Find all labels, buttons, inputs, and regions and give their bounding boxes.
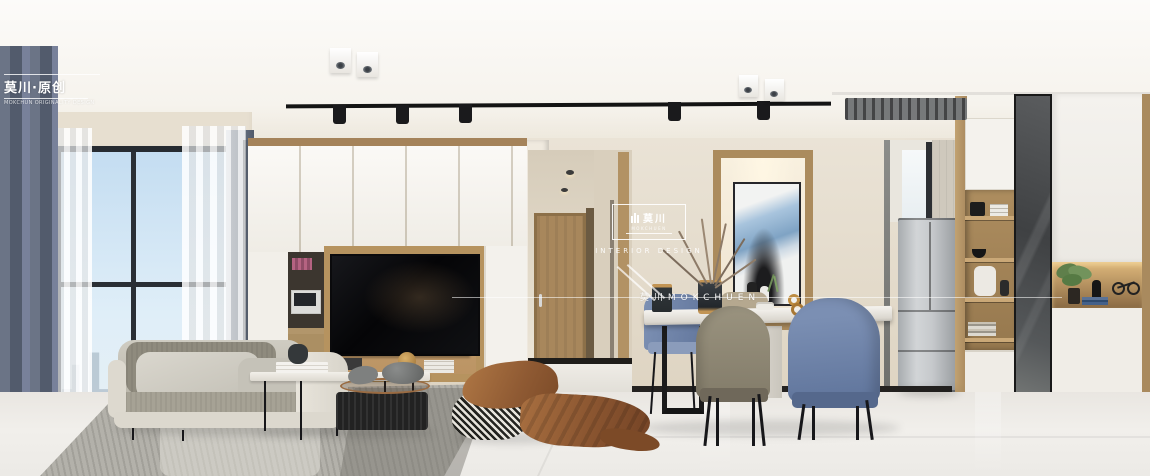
watermark-top-left: 莫川·原创 MOKCHUN ORIGINALITY DESIGN (4, 74, 100, 106)
chair-leg (716, 398, 719, 446)
hall-downlight (566, 170, 574, 175)
shelf-board (965, 258, 1015, 262)
coffee-table-leg (300, 381, 302, 437)
shelf-board (965, 298, 1015, 302)
shelf-board (965, 216, 1015, 220)
coffee-table-black (336, 392, 428, 430)
sofa-base (114, 412, 340, 428)
floor-sheen (975, 392, 1001, 476)
ceiling-spot-cube (739, 75, 758, 97)
watermark-title: 莫川·原创 (4, 77, 100, 96)
tv-unit-top-trim (248, 138, 527, 146)
logo-box-line (626, 233, 672, 234)
niche-blue-books (1082, 297, 1108, 305)
fridge-shadow (898, 388, 960, 396)
console-books (424, 360, 454, 373)
track-light-fixture (668, 102, 681, 121)
desk-monitor-screen (294, 293, 316, 306)
fridge-drawer-seam (898, 310, 960, 312)
nook-books (292, 258, 312, 270)
shelf-white-books (990, 204, 1008, 216)
table-vase (288, 344, 308, 364)
track-light-fixture (396, 105, 409, 124)
shelf-cloth (974, 266, 996, 296)
spot-lens (744, 87, 752, 93)
hall-right-jamb (586, 208, 594, 366)
interior-photo: 莫川·原创 MOKCHUN ORIGINALITY DESIGN 莫川 MOKC… (0, 0, 1150, 476)
door-handle (539, 294, 542, 307)
chair-leg (856, 406, 859, 440)
dining-chair-taupe (696, 306, 770, 398)
chair-leg (752, 398, 755, 446)
table-books (276, 362, 328, 373)
table-dishes (756, 302, 774, 310)
sofa-leg (182, 430, 184, 441)
passage-corner (884, 140, 890, 392)
watermark-underline (4, 98, 88, 99)
hall-downlight (561, 188, 568, 192)
shelf-dark-vase (1000, 280, 1009, 296)
watermark-logo-box: 莫川 MOKCHUEN (612, 204, 686, 240)
shelf-board (965, 338, 1015, 342)
watermark-logo-sub: MOKCHUEN (631, 226, 666, 231)
tray-sculpture (382, 362, 424, 384)
fridge-drawer-seam (898, 350, 960, 352)
ac-vent (845, 98, 967, 120)
shelf-camera-decor (970, 202, 985, 216)
sofa-leg (132, 428, 134, 440)
shelf-book-stack (968, 322, 996, 336)
watermark-logo-cn: 莫川 (643, 210, 667, 225)
watermark-tagline: INTERIOR DESIGN (594, 247, 704, 255)
dining-chair-blue-right (788, 298, 880, 402)
chair-leg (812, 406, 815, 440)
track-light-fixture (459, 104, 472, 123)
watermark-subtitle: MOKCHUN ORIGINALITY DESIGN (4, 100, 100, 106)
tall-white-panel (1052, 94, 1144, 262)
coffee-table-leg (264, 381, 266, 431)
dining-shadow (640, 420, 900, 436)
unit-upper-doors (965, 118, 1015, 190)
tv-upper-cabinets (248, 146, 527, 252)
ceiling-spot-cube (765, 79, 784, 101)
tv (330, 254, 480, 356)
sofa-arm-left (108, 360, 126, 418)
spot-lens (336, 62, 345, 69)
building-logo-icon (631, 213, 639, 223)
track-light-fixture (757, 101, 770, 120)
ceiling-spot-cube (330, 48, 351, 73)
spot-lens (770, 91, 778, 97)
track-light-fixture (333, 105, 346, 124)
watermark-baseline-text: 莫川MOKCHUEN (560, 290, 840, 303)
niche-plant-pot (1068, 288, 1080, 304)
ceiling-spot-cube (357, 52, 378, 77)
kitchen-window (902, 150, 926, 220)
spot-lens (363, 66, 372, 73)
hall-door (534, 213, 586, 363)
